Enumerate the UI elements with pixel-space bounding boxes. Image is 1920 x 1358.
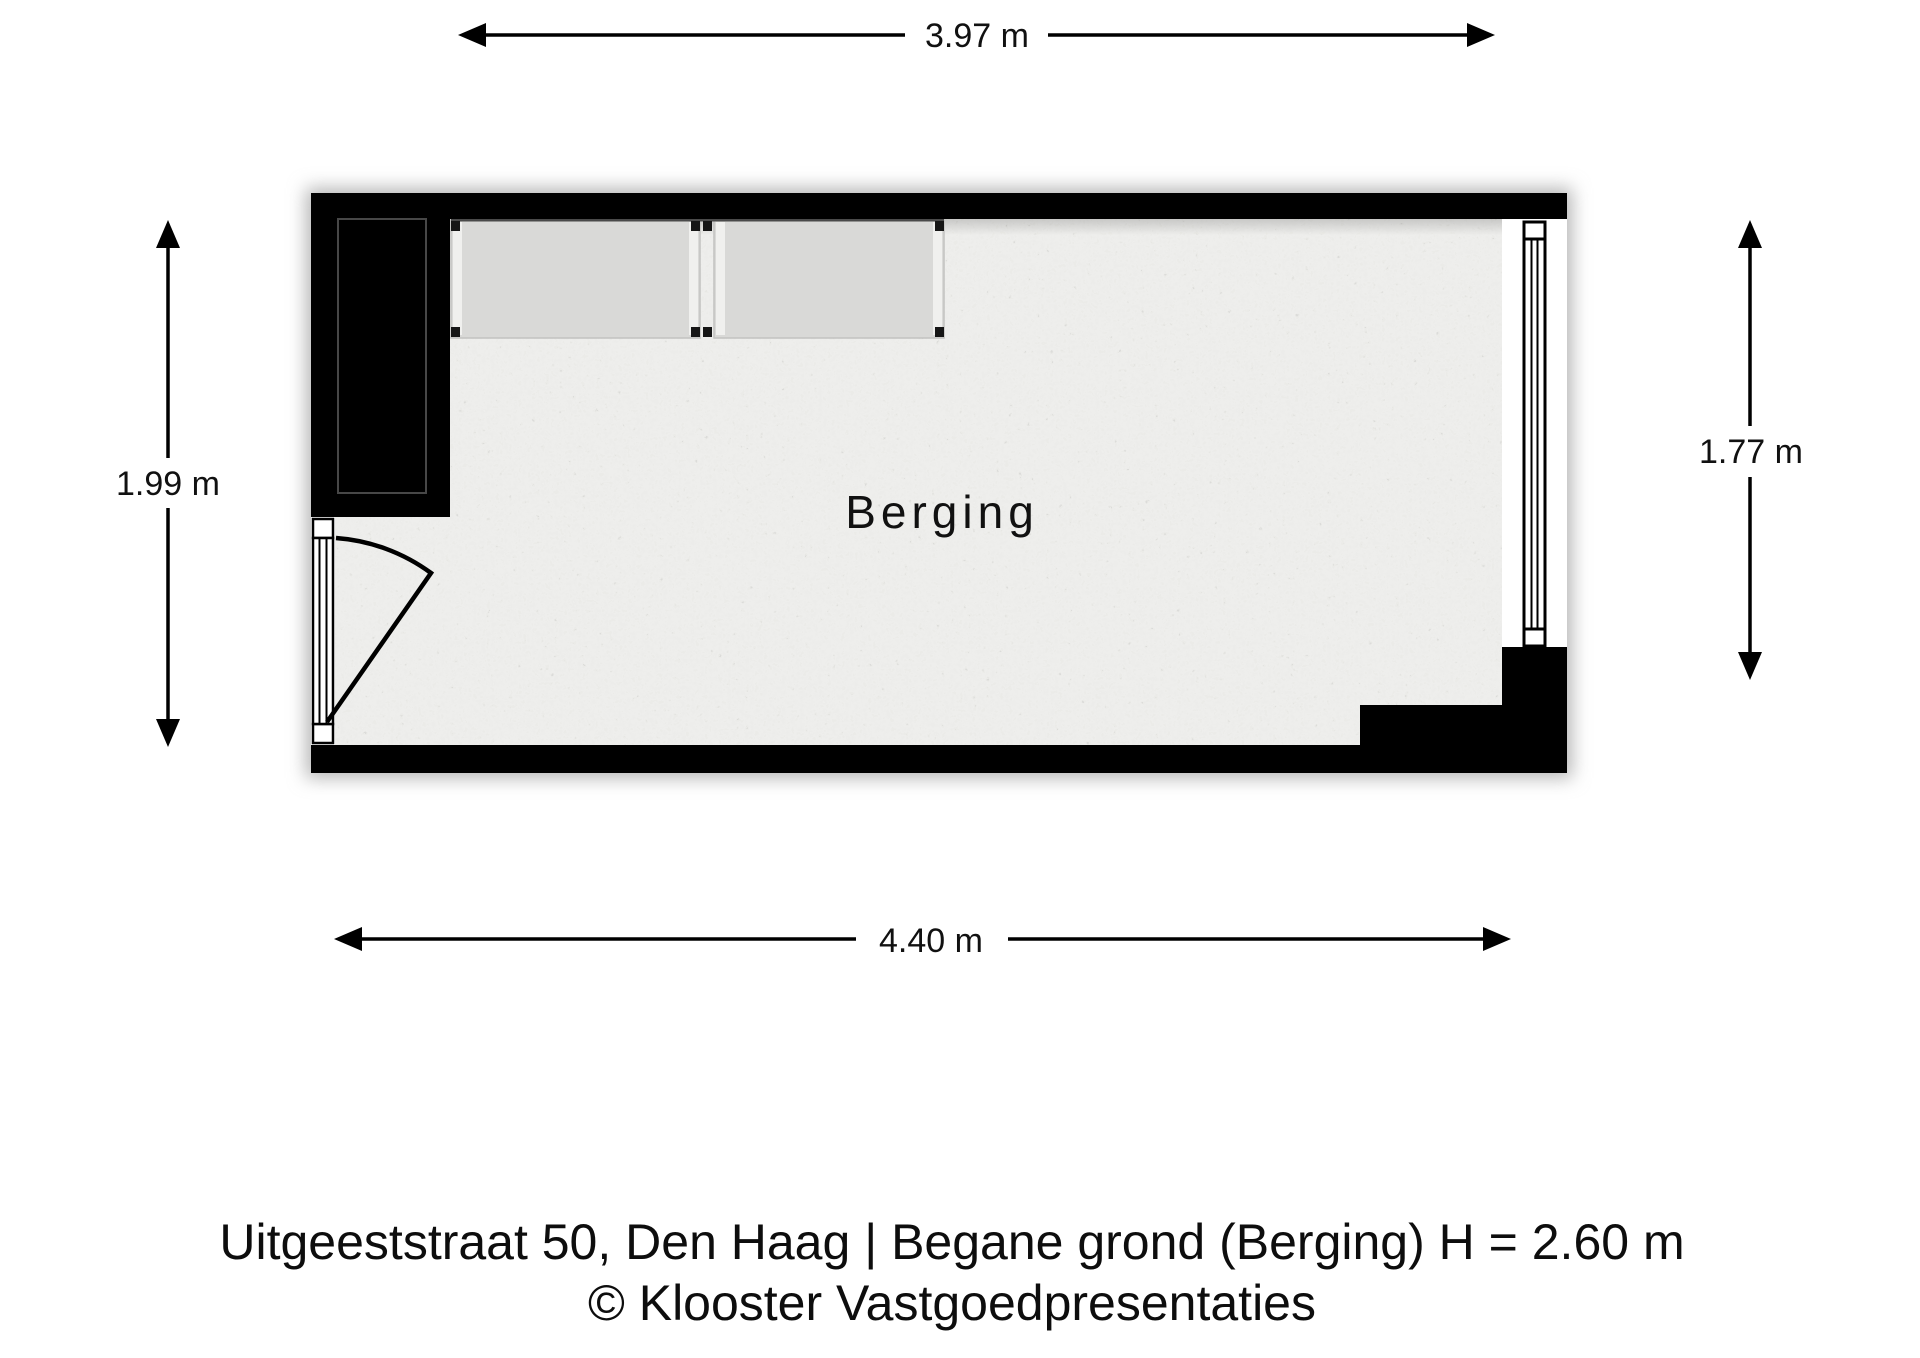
window-frame xyxy=(1524,222,1545,646)
arrowhead-bottom-right xyxy=(1483,927,1511,951)
window xyxy=(1502,219,1567,647)
cabinet-edge-band xyxy=(716,222,725,335)
caption-block: Uitgeeststraat 50, Den Haag | Begane gro… xyxy=(0,1212,1904,1334)
cabinet-edge-band xyxy=(933,222,942,335)
arrowhead-right-up xyxy=(1738,220,1762,248)
floorplan-drawing: Berging 3.97 m 4.40 m 1.99 m 1.77 xyxy=(0,0,1920,1160)
cabinet-edge-band xyxy=(689,222,698,335)
wall-top xyxy=(311,193,1567,219)
cabinet-unit xyxy=(714,219,944,338)
arrowhead-left-up xyxy=(156,220,180,248)
arrowhead-left-down xyxy=(156,719,180,747)
arrowhead-top-right xyxy=(1467,23,1495,47)
caption-copyright-line: © Klooster Vastgoedpresentaties xyxy=(0,1272,1904,1334)
cabinet-edge-band xyxy=(453,222,462,335)
arrowhead-bottom-left xyxy=(334,927,362,951)
cabinet-group xyxy=(451,219,944,338)
door-leaf-panel xyxy=(313,538,333,724)
door-jamb-bottom xyxy=(313,724,333,743)
floorplan-page: Berging 3.97 m 4.40 m 1.99 m 1.77 xyxy=(0,0,1920,1358)
dim-label-left: 1.99 m xyxy=(116,465,220,503)
room-label: Berging xyxy=(845,486,1039,538)
cabinet-unit xyxy=(451,219,700,338)
caption-address-line: Uitgeeststraat 50, Den Haag | Begane gro… xyxy=(0,1212,1904,1272)
dim-label-top: 3.97 m xyxy=(925,17,1029,55)
wall-step-lower xyxy=(1360,705,1567,773)
dim-label-bottom: 4.40 m xyxy=(879,922,983,960)
door-jamb-top xyxy=(313,519,333,538)
arrowhead-top-left xyxy=(458,23,486,47)
wall-left-closet-block xyxy=(311,193,450,517)
arrowhead-right-down xyxy=(1738,652,1762,680)
dim-label-right: 1.77 m xyxy=(1699,433,1803,471)
